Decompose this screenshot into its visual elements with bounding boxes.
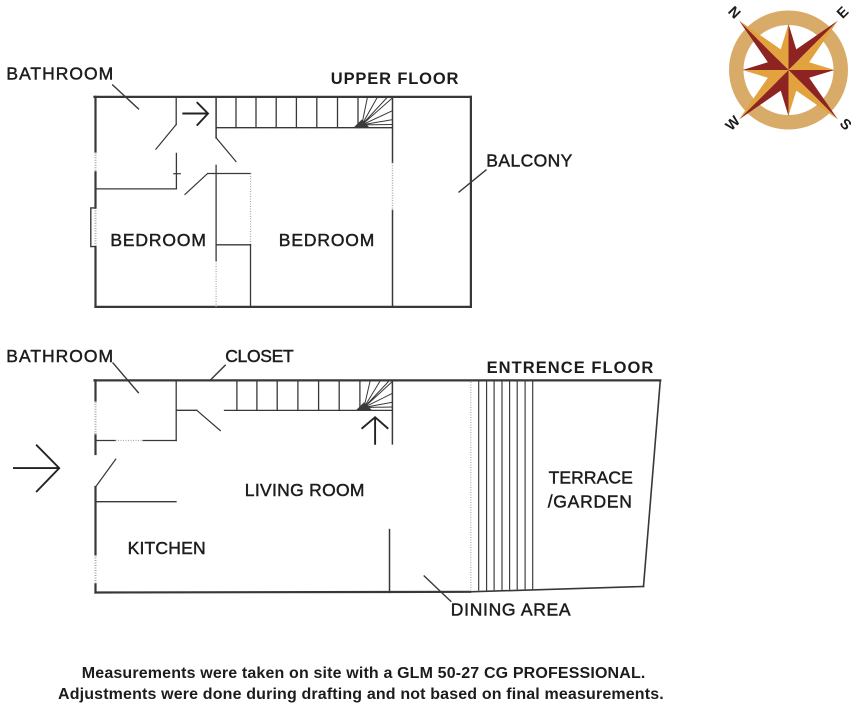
svg-text:BEDROOM: BEDROOM — [110, 230, 206, 250]
svg-text:BATHROOM: BATHROOM — [6, 64, 114, 84]
svg-text:BEDROOM: BEDROOM — [279, 230, 375, 250]
svg-text:N: N — [724, 4, 743, 23]
svg-text:LIVING ROOM: LIVING ROOM — [245, 480, 365, 500]
svg-text:UPPER FLOOR: UPPER FLOOR — [331, 70, 460, 88]
svg-text:Adjustments were done during d: Adjustments were done during drafting an… — [58, 686, 664, 703]
svg-text:E: E — [834, 4, 852, 22]
svg-text:/GARDEN: /GARDEN — [548, 492, 633, 512]
svg-text:Measurements were taken on sit: Measurements were taken on site with a G… — [82, 665, 646, 682]
svg-text:W: W — [723, 113, 744, 134]
svg-text:KITCHEN: KITCHEN — [128, 538, 206, 558]
svg-text:ENTRENCE FLOOR: ENTRENCE FLOOR — [487, 359, 655, 377]
svg-text:CLOSET: CLOSET — [225, 346, 294, 366]
svg-text:S: S — [836, 116, 854, 134]
svg-text:DINING AREA: DINING AREA — [451, 600, 572, 620]
svg-text:BATHROOM: BATHROOM — [6, 346, 114, 366]
svg-text:BALCONY: BALCONY — [486, 151, 572, 171]
svg-text:TERRACE: TERRACE — [549, 467, 633, 487]
